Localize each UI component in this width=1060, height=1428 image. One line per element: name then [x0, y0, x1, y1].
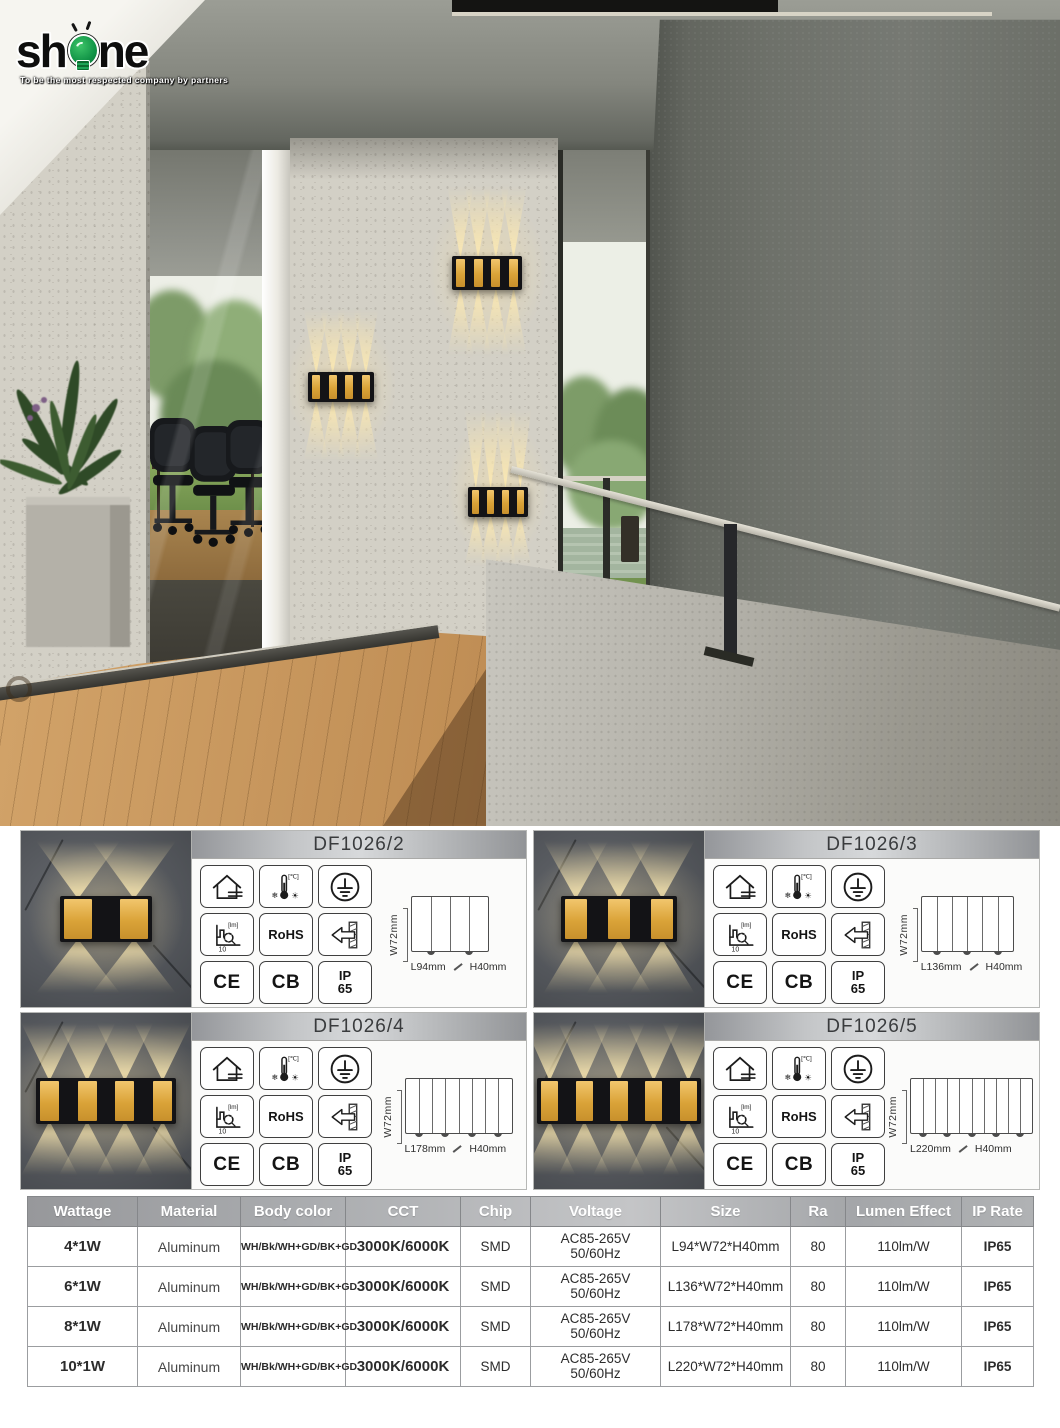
lumen-output-icon: [lm] 10: [200, 913, 254, 956]
header-body-color: Body color: [241, 1197, 346, 1227]
ceiling-light-track: [452, 12, 992, 16]
model-name-bar: DF1026/2: [192, 831, 526, 859]
lamp-gold-stripe: [64, 899, 92, 939]
snowflake-glyph: ❄: [272, 1073, 279, 1082]
diagram-segment-line: [469, 897, 470, 951]
diagram-segment-line: [445, 1079, 446, 1133]
diagram-mount-foot: [963, 951, 971, 955]
dimension-bracket: [902, 1090, 907, 1144]
right-window: [558, 150, 650, 620]
width-dimension-label: W72mm: [382, 1096, 394, 1138]
rohs-mark: RoHS: [259, 913, 313, 956]
exterior-soffit: [563, 150, 646, 242]
diagram-mount-foot: [1016, 1133, 1024, 1137]
ip-cell: IP65: [962, 1307, 1034, 1347]
diagram-mount-foot: [994, 951, 1002, 955]
diagram-mount-foot: [494, 1133, 502, 1137]
length-dimension-label: L220mm: [910, 1143, 951, 1155]
ra-cell: 80: [791, 1227, 846, 1267]
cct-cell: 3000K/6000K: [346, 1267, 461, 1307]
lumen-unit-label: [lm]: [741, 1104, 751, 1111]
spec-table: Wattage Material Body color CCT Chip Vol…: [27, 1196, 1034, 1387]
header-wattage: Wattage: [28, 1197, 138, 1227]
depth-tick: [453, 963, 462, 970]
lamp-gold-stripe: [345, 375, 353, 399]
diagram-segment-line: [998, 897, 999, 951]
product-panel: DF1026/2 [℃]: [20, 830, 527, 1008]
lamp-gold-stripe: [120, 899, 148, 939]
exterior-soffit: [150, 150, 262, 276]
header-ra: Ra: [791, 1197, 846, 1227]
ip-cell: IP65: [962, 1227, 1034, 1267]
indoor-outdoor-house-icon: [713, 1047, 767, 1090]
celsius-label: [℃]: [288, 873, 299, 880]
diagram-segment-line: [959, 1079, 960, 1133]
snowflake-glyph: ❄: [785, 1073, 792, 1082]
cb-mark: CB: [772, 961, 826, 1004]
diagram-segment-line: [450, 897, 451, 951]
dimension-bracket: [913, 908, 918, 962]
diagram-segment-line: [996, 1079, 997, 1133]
hero-wall-lamp-top: [452, 256, 522, 290]
lamp-gold-stripe: [680, 1081, 697, 1121]
sky: [150, 276, 262, 460]
depth-tick: [969, 963, 978, 970]
diagram-mount-foot: [441, 1133, 449, 1137]
lamp-gold-stripe: [474, 259, 483, 287]
lumen-value-label: 10: [732, 946, 740, 952]
hero-wall-lamp-middle: [308, 372, 374, 402]
chip-cell: SMD: [461, 1267, 531, 1307]
diagram-mount-foot: [465, 951, 473, 955]
length-dimension-label: L136mm: [921, 961, 962, 973]
voltage-cell: AC85-265V 50/60Hz: [531, 1307, 661, 1347]
indoor-outdoor-house-icon: [200, 865, 254, 908]
cb-mark: CB: [259, 961, 313, 1004]
model-name: DF1026/2: [313, 834, 404, 856]
indoor-outdoor-house-icon: [200, 1047, 254, 1090]
height-dimension-label: H40mm: [469, 1143, 506, 1155]
sun-glyph: ☀: [291, 891, 299, 901]
lamp-gold-stripe: [472, 490, 479, 514]
brand-name-prefix: sh: [16, 31, 66, 72]
spec-table-header-row: Wattage Material Body color CCT Chip Vol…: [28, 1197, 1034, 1227]
depth-tick: [958, 1145, 967, 1152]
ip-cell: IP65: [962, 1267, 1034, 1307]
diagram-mount-foot: [919, 1133, 927, 1137]
lamp-gold-stripe: [645, 1081, 662, 1121]
lamp-gold-stripe: [565, 899, 587, 939]
earth-ground-icon: [831, 1047, 885, 1090]
lamp-gold-stripe: [509, 259, 518, 287]
tree: [190, 300, 262, 420]
size-cell: L178*W72*H40mm: [661, 1307, 791, 1347]
body-color-cell: WH/Bk/WH+GD/BK+GD: [241, 1267, 346, 1307]
material-cell: Aluminum: [138, 1347, 241, 1387]
rohs-mark: RoHS: [259, 1095, 313, 1138]
width-dimension-label: W72mm: [887, 1096, 899, 1138]
cct-cell: 3000K/6000K: [346, 1347, 461, 1387]
diagram-mount-foot: [468, 1133, 476, 1137]
voltage-cell: AC85-265V 50/60Hz: [531, 1267, 661, 1307]
lantern-silhouette: [621, 516, 639, 562]
lamp-gold-stripe: [502, 490, 509, 514]
header-chip: Chip: [461, 1197, 531, 1227]
product-lamp: [537, 1078, 701, 1124]
office-chairs-silhouette: [150, 390, 262, 646]
dimension-diagram: W72mm L220mm H40mm: [885, 1078, 1035, 1155]
chip-cell: SMD: [461, 1347, 531, 1387]
lamp-body: [561, 896, 677, 942]
ra-cell: 80: [791, 1347, 846, 1387]
lamp-body: [468, 487, 528, 517]
product-lamp: [60, 896, 152, 942]
product-photo: [534, 831, 704, 1007]
size-cell: L220*W72*H40mm: [661, 1347, 791, 1387]
length-dimension-label: L94mm: [411, 961, 446, 973]
temperature-range-icon: [℃] ❄ ☀: [259, 865, 313, 908]
temperature-range-icon: [℃] ❄ ☀: [772, 1047, 826, 1090]
lamp-line-drawing: [921, 896, 1014, 952]
depth-tick: [453, 1145, 462, 1152]
product-photo: [534, 1013, 704, 1189]
handrail-post: [724, 524, 737, 660]
diagram-mount-foot: [943, 1133, 951, 1137]
hero-photo: sh ne To be the most respected company b…: [0, 0, 1060, 826]
product-panel: DF1026/5 [℃]: [533, 1012, 1040, 1190]
product-panel: DF1026/4 [℃]: [20, 1012, 527, 1190]
lumen-cell: 110lm/W: [846, 1227, 962, 1267]
diagram-segment-line: [935, 1079, 936, 1133]
lumen-unit-label: [lm]: [228, 922, 238, 929]
ip65-mark: IP 65: [831, 1143, 885, 1186]
cb-mark: CB: [772, 1143, 826, 1186]
brand-logo: sh ne To be the most respected company b…: [16, 30, 236, 85]
celsius-label: [℃]: [288, 1055, 299, 1062]
lamp-gold-stripe: [312, 375, 320, 399]
model-name: DF1026/4: [313, 1016, 404, 1038]
ra-cell: 80: [791, 1267, 846, 1307]
earth-ground-icon: [318, 1047, 372, 1090]
tree: [160, 360, 262, 470]
ip65-mark: IP 65: [318, 1143, 372, 1186]
lumen-value-label: 10: [219, 1128, 227, 1134]
material-cell: Aluminum: [138, 1227, 241, 1267]
potted-plant: [0, 312, 150, 652]
chip-cell: SMD: [461, 1227, 531, 1267]
panels-grid: DF1026/2 [℃]: [20, 830, 1040, 1190]
lamp-gold-stripe: [362, 375, 370, 399]
lamp-gold-stripe: [651, 899, 673, 939]
lamp-gold-stripe: [487, 490, 494, 514]
certification-icons: [℃] ❄ ☀: [713, 1047, 885, 1186]
diagram-segment-line: [937, 897, 938, 951]
bulb-icon: [67, 30, 97, 72]
product-lamp: [561, 896, 677, 942]
ip65-mark: IP 65: [831, 961, 885, 1004]
lamp-body: [452, 256, 522, 290]
earth-ground-icon: [831, 865, 885, 908]
lamp-gold-stripe: [115, 1081, 134, 1121]
header-cct: CCT: [346, 1197, 461, 1227]
lamp-body: [36, 1078, 176, 1124]
length-dimension-label: L178mm: [405, 1143, 446, 1155]
lumen-value-label: 10: [219, 946, 227, 952]
diagram-segment-line: [432, 1079, 433, 1133]
body-color-cell: WH/Bk/WH+GD/BK+GD: [241, 1227, 346, 1267]
wall-mount-icon: [831, 1095, 885, 1138]
diagram-segment-line: [1008, 1079, 1009, 1133]
body-color-cell: WH/Bk/WH+GD/BK+GD: [241, 1307, 346, 1347]
diagram-segment-line: [1020, 1079, 1021, 1133]
product-lamp: [36, 1078, 176, 1124]
ce-mark: CE: [713, 961, 767, 1004]
diagram-segment-line: [498, 1079, 499, 1133]
lamp-gold-stripe: [517, 490, 524, 514]
width-dimension-label: W72mm: [388, 914, 400, 956]
lamp-gold-stripe: [456, 259, 465, 287]
body-color-cell: WH/Bk/WH+GD/BK+GD: [241, 1347, 346, 1387]
width-dimension-label: W72mm: [898, 914, 910, 956]
celsius-label: [℃]: [801, 873, 812, 880]
brand-name-suffix: ne: [98, 31, 148, 72]
dimension-diagram: W72mm L178mm H40mm: [372, 1078, 522, 1155]
temperature-range-icon: [℃] ❄ ☀: [259, 1047, 313, 1090]
lumen-output-icon: [lm] 10: [713, 913, 767, 956]
header-voltage: Voltage: [531, 1197, 661, 1227]
ra-cell: 80: [791, 1307, 846, 1347]
lumen-cell: 110lm/W: [846, 1307, 962, 1347]
height-dimension-label: H40mm: [986, 961, 1023, 973]
sun-glyph: ☀: [291, 1073, 299, 1083]
height-dimension-label: H40mm: [470, 961, 507, 973]
model-name-bar: DF1026/4: [192, 1013, 526, 1041]
certification-icons: [℃] ❄ ☀: [200, 1047, 372, 1186]
lumen-output-icon: [lm] 10: [200, 1095, 254, 1138]
indoor-outdoor-house-icon: [713, 865, 767, 908]
wattage-cell: 4*1W: [28, 1227, 138, 1267]
ce-mark: CE: [200, 1143, 254, 1186]
cb-mark: CB: [259, 1143, 313, 1186]
diagram-segment-line: [431, 897, 432, 951]
lamp-gold-stripe: [608, 899, 630, 939]
lumen-value-label: 10: [732, 1128, 740, 1134]
spec-row: 4*1W Aluminum WH/Bk/WH+GD/BK+GD 3000K/60…: [28, 1227, 1034, 1267]
lamp-gold-stripe: [541, 1081, 558, 1121]
lumen-cell: 110lm/W: [846, 1347, 962, 1387]
lumen-unit-label: [lm]: [228, 1104, 238, 1111]
spec-row: 10*1W Aluminum WH/Bk/WH+GD/BK+GD 3000K/6…: [28, 1347, 1034, 1387]
diagram-mount-foot: [415, 1133, 423, 1137]
model-name-bar: DF1026/3: [705, 831, 1039, 859]
wall-mount-icon: [318, 1095, 372, 1138]
lamp-gold-stripe: [78, 1081, 97, 1121]
dimension-bracket: [403, 908, 408, 962]
rohs-mark: RoHS: [772, 1095, 826, 1138]
lawn: [150, 460, 262, 512]
dimension-diagram: W72mm L94mm H40mm: [372, 896, 522, 973]
diagram-segment-line: [952, 897, 953, 951]
tree: [150, 290, 212, 400]
lumen-cell: 110lm/W: [846, 1267, 962, 1307]
lumen-output-icon: [lm] 10: [713, 1095, 767, 1138]
spec-row: 8*1W Aluminum WH/Bk/WH+GD/BK+GD 3000K/60…: [28, 1307, 1034, 1347]
diagram-mount-foot: [968, 1133, 976, 1137]
lamp-line-drawing: [405, 1078, 513, 1134]
sun-glyph: ☀: [804, 891, 812, 901]
header-ip-rate: IP Rate: [962, 1197, 1034, 1227]
cct-cell: 3000K/6000K: [346, 1227, 461, 1267]
celsius-label: [℃]: [801, 1055, 812, 1062]
outdoor-deck: [150, 510, 262, 582]
dimension-bracket: [397, 1090, 402, 1144]
header-size: Size: [661, 1197, 791, 1227]
hero-wall-lamp-bottom: [468, 487, 528, 517]
model-name: DF1026/3: [826, 834, 917, 856]
spec-area: DF1026/5 [℃]: [704, 1013, 1039, 1189]
ce-mark: CE: [713, 1143, 767, 1186]
product-panel: DF1026/3 [℃]: [533, 830, 1040, 1008]
diagram-segment-line: [984, 1079, 985, 1133]
wattage-cell: 6*1W: [28, 1267, 138, 1307]
product-sheet: sh ne To be the most respected company b…: [0, 0, 1060, 1428]
temperature-range-icon: [℃] ❄ ☀: [772, 865, 826, 908]
model-name-bar: DF1026/5: [705, 1013, 1039, 1041]
lamp-gold-stripe: [491, 259, 500, 287]
wattage-cell: 8*1W: [28, 1307, 138, 1347]
spec-area: DF1026/3 [℃]: [704, 831, 1039, 1007]
header-lumen-effect: Lumen Effect: [846, 1197, 962, 1227]
lamp-gold-stripe: [40, 1081, 59, 1121]
rohs-mark: RoHS: [772, 913, 826, 956]
certification-icons: [℃] ❄ ☀: [200, 865, 372, 1004]
glass-wall-view: [150, 150, 262, 706]
chip-cell: SMD: [461, 1307, 531, 1347]
sun-glyph: ☀: [804, 1073, 812, 1083]
lamp-body: [537, 1078, 701, 1124]
diagram-segment-line: [967, 897, 968, 951]
diagram-segment-line: [947, 1079, 948, 1133]
diagram-segment-line: [459, 1079, 460, 1133]
ip-cell: IP65: [962, 1347, 1034, 1387]
product-photo: [21, 831, 191, 1007]
lamp-line-drawing: [411, 896, 489, 952]
lumen-unit-label: [lm]: [741, 922, 751, 929]
ce-mark: CE: [200, 961, 254, 1004]
wall-mount-icon: [318, 913, 372, 956]
diagram-segment-line: [485, 1079, 486, 1133]
voltage-cell: AC85-265V 50/60Hz: [531, 1347, 661, 1387]
size-cell: L94*W72*H40mm: [661, 1227, 791, 1267]
diagram-segment-line: [923, 1079, 924, 1133]
diagram-mount-foot: [933, 951, 941, 955]
snowflake-glyph: ❄: [785, 891, 792, 900]
material-cell: Aluminum: [138, 1267, 241, 1307]
spec-table-body: 4*1W Aluminum WH/Bk/WH+GD/BK+GD 3000K/60…: [28, 1227, 1034, 1387]
diagram-segment-line: [419, 1079, 420, 1133]
floor-ring-mark: [6, 676, 32, 702]
spec-area: DF1026/2 [℃]: [191, 831, 526, 1007]
spec-area: DF1026/4 [℃]: [191, 1013, 526, 1189]
diagram-mount-foot: [427, 951, 435, 955]
wattage-cell: 10*1W: [28, 1347, 138, 1387]
dimension-diagram: W72mm L136mm H40mm: [885, 896, 1035, 973]
earth-ground-icon: [318, 865, 372, 908]
diagram-segment-line: [472, 1079, 473, 1133]
header-material: Material: [138, 1197, 241, 1227]
material-cell: Aluminum: [138, 1307, 241, 1347]
spec-row: 6*1W Aluminum WH/Bk/WH+GD/BK+GD 3000K/60…: [28, 1267, 1034, 1307]
lamp-body: [60, 896, 152, 942]
cct-cell: 3000K/6000K: [346, 1307, 461, 1347]
snowflake-glyph: ❄: [272, 891, 279, 900]
brand-tagline: To be the most respected company by part…: [20, 75, 236, 85]
model-name: DF1026/5: [826, 1016, 917, 1038]
diagram-mount-foot: [992, 1133, 1000, 1137]
voltage-cell: AC85-265V 50/60Hz: [531, 1227, 661, 1267]
ip65-mark: IP 65: [318, 961, 372, 1004]
size-cell: L136*W72*H40mm: [661, 1267, 791, 1307]
product-photo: [21, 1013, 191, 1189]
height-dimension-label: H40mm: [975, 1143, 1012, 1155]
lamp-body: [308, 372, 374, 402]
certification-icons: [℃] ❄ ☀: [713, 865, 885, 1004]
lamp-gold-stripe: [576, 1081, 593, 1121]
diagram-segment-line: [982, 897, 983, 951]
diagram-segment-line: [972, 1079, 973, 1133]
lamp-gold-stripe: [329, 375, 337, 399]
lamp-gold-stripe: [610, 1081, 627, 1121]
wall-mount-icon: [831, 913, 885, 956]
lamp-gold-stripe: [153, 1081, 172, 1121]
lamp-line-drawing: [910, 1078, 1033, 1134]
